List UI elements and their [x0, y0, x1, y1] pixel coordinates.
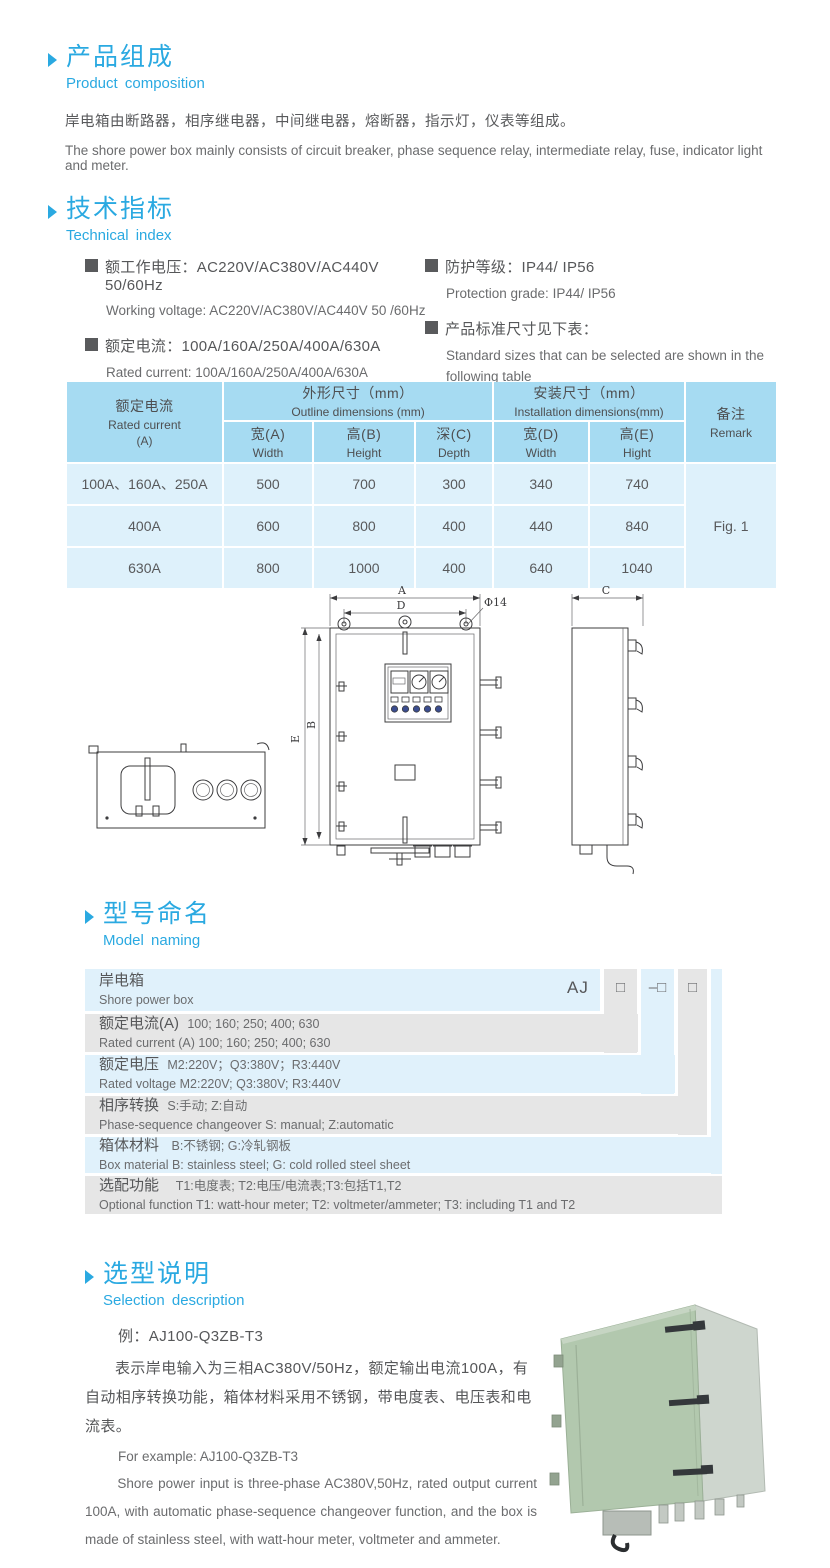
spec-protection-grade: 防护等级：IP44/ IP56 Protection grade: IP44/ … — [425, 256, 775, 305]
composition-body-zh: 岸电箱由断路器，相序继电器，中间继电器，熔断器，指示灯，仪表等组成。 — [65, 110, 788, 131]
bottom-glands-front — [337, 817, 472, 865]
naming-title-en: Model naming — [103, 932, 211, 949]
table-row-cell: 300 — [416, 464, 492, 504]
subheader-height-e: 高(E)Hight — [590, 422, 684, 462]
dim-label-d: D — [397, 599, 406, 612]
technical-title-zh: 技术指标 — [66, 196, 174, 224]
dim-label-b: B — [305, 721, 318, 729]
table-row-cell: 840 — [590, 506, 684, 546]
side-bottom-cable — [580, 845, 633, 874]
spec-zh-text: 额工作电压：AC220V/AC380V/AC440V 50/60Hz — [105, 256, 435, 294]
table-row-cell: 740 — [590, 464, 684, 504]
spec-zh-text: 防护等级：IP44/ IP56 — [445, 256, 595, 277]
table-row-cell: 100A、160A、250A — [67, 464, 222, 504]
table-row-cell: 400A — [67, 506, 222, 546]
header-rated-current: 额定电流 Rated current (A) — [67, 382, 222, 462]
naming-heading: 型号命名 Model naming — [85, 901, 765, 949]
dim-label-a: A — [397, 584, 407, 597]
technical-heading: 技术指标 Technical index — [48, 196, 788, 244]
subheader-width-a: 宽(A)Width — [224, 422, 312, 462]
technical-title-en: Technical index — [66, 227, 174, 244]
naming-row-box-material: 箱体材料 B:不锈钢; G:冷轧钢板 Box material B: stain… — [85, 1137, 722, 1173]
selection-heading: 选型说明 Selection description — [85, 1261, 537, 1309]
outline-drawing-svg: A D Φ14 — [85, 582, 765, 882]
spec-en-text: Working voltage: AC220V/AC380V/AC440V 50… — [106, 301, 435, 322]
spec-en-text: Protection grade: IP44/ IP56 — [446, 284, 775, 305]
subheader-height-b: 高(B)Height — [314, 422, 414, 462]
product-photo — [545, 1293, 810, 1558]
spec-zh-text: 额定电流：100A/160A/250A/400A/630A — [105, 335, 381, 356]
table-row-cell: 340 — [494, 464, 588, 504]
dim-label-c: C — [602, 584, 610, 597]
side-latches — [628, 640, 642, 828]
dim-label-phi14: Φ14 — [484, 596, 507, 609]
selection-title-en: Selection description — [103, 1292, 244, 1309]
spec-zh-text: 产品标准尺寸见下表： — [445, 318, 598, 339]
square-bullet-icon — [85, 338, 98, 351]
subheader-depth-c: 深(C)Depth — [416, 422, 492, 462]
naming-row-shore-power-box: 岸电箱 Shore power box AJ — [85, 969, 600, 1011]
datasheet-page: 产品组成 Product composition 岸电箱由断路器，相序继电器，中… — [0, 0, 830, 1568]
arrow-icon — [48, 205, 57, 219]
arrow-icon — [85, 1270, 94, 1284]
subheader-width-d: 宽(D)Width — [494, 422, 588, 462]
selection-body-zh: 表示岸电输入为三相AC380V/50Hz，额定输出电流100A，有自动相序转换功… — [85, 1354, 537, 1442]
composition-body-en: The shore power box mainly consists of c… — [65, 143, 788, 173]
table-row-cell: 800 — [314, 506, 414, 546]
naming-title-zh: 型号命名 — [103, 901, 211, 929]
section-product-composition: 产品组成 Product composition 岸电箱由断路器，相序继电器，中… — [48, 44, 788, 173]
green-box-illustration — [545, 1293, 810, 1553]
composition-heading: 产品组成 Product composition — [48, 44, 788, 92]
naming-row-rated-voltage: 额定电压 M2:220V；Q3:380V；R3:440V Rated volta… — [85, 1055, 675, 1093]
naming-row-optional-function: 选配功能 T1:电度表; T2:电压/电流表;T3:包括T1,T2 Option… — [85, 1176, 722, 1214]
square-bullet-icon — [425, 321, 438, 334]
control-panel — [385, 664, 451, 722]
square-bullet-icon — [425, 259, 438, 272]
arrow-icon — [48, 53, 57, 67]
section-model-naming: 型号命名 Model naming □ –□ □ 岸电箱 Shore power… — [85, 901, 765, 1215]
table-row-cell: 500 — [224, 464, 312, 504]
model-prefix: AJ — [567, 978, 589, 998]
model-naming-table: □ –□ □ 岸电箱 Shore power box AJ 额定电流(A) 10… — [85, 969, 725, 1215]
table-row-cell: 400 — [416, 506, 492, 546]
section-technical-index: 技术指标 Technical index 额工作电压：AC220V/AC380V… — [48, 196, 788, 244]
shore-power-box-image — [550, 1305, 765, 1550]
table-row-cell: 700 — [314, 464, 414, 504]
table-row-cell: 600 — [224, 506, 312, 546]
header-outline-dimensions: 外形尺寸（mm） Outline dimensions (mm) — [224, 382, 492, 420]
selection-example-en: For example: AJ100-Q3ZB-T3 — [118, 1449, 537, 1464]
side-view: C — [572, 584, 643, 874]
header-installation-dimensions: 安装尺寸（mm） Installation dimensions(mm) — [494, 382, 684, 420]
square-bullet-icon — [85, 259, 98, 272]
naming-row-phase-sequence: 相序转换 S:手动; Z:自动 Phase-sequence changeove… — [85, 1096, 707, 1134]
door-screws — [336, 682, 347, 831]
selection-example-zh: 例：AJ100-Q3ZB-T3 — [118, 1325, 537, 1346]
selection-body-en: Shore power input is three-phase AC380V,… — [85, 1470, 537, 1553]
spec-column-right: 防护等级：IP44/ IP56 Protection grade: IP44/ … — [425, 256, 775, 401]
section-selection-description: 选型说明 Selection description 例：AJ100-Q3ZB-… — [85, 1261, 537, 1553]
dimensions-table: 额定电流 Rated current (A) 外形尺寸（mm） Outline … — [67, 382, 776, 588]
naming-row-rated-current: 额定电流(A) 100; 160; 250; 400; 630 Rated cu… — [85, 1014, 638, 1052]
spec-working-voltage: 额工作电压：AC220V/AC380V/AC440V 50/60Hz Worki… — [85, 256, 435, 322]
spec-column-left: 额工作电压：AC220V/AC380V/AC440V 50/60Hz Worki… — [85, 256, 435, 397]
spec-rated-current: 额定电流：100A/160A/250A/400A/630A Rated curr… — [85, 335, 435, 384]
bottom-view — [89, 743, 269, 828]
table-row-cell: 440 — [494, 506, 588, 546]
composition-title-en: Product composition — [66, 75, 205, 92]
selection-title-zh: 选型说明 — [103, 1261, 244, 1289]
spec-standard-sizes: 产品标准尺寸见下表： Standard sizes that can be se… — [425, 318, 775, 388]
spec-en-text: Rated current: 100A/160A/250A/400A/630A — [106, 363, 435, 384]
dim-label-e: E — [289, 735, 302, 743]
technical-drawing: A D Φ14 — [85, 582, 765, 882]
header-remark: 备注 Remark — [686, 382, 776, 462]
remark-fig-cell: Fig. 1 — [686, 464, 776, 588]
front-view: A D Φ14 — [289, 584, 507, 865]
door-latches — [480, 677, 501, 833]
arrow-icon — [85, 910, 94, 924]
composition-title-zh: 产品组成 — [66, 44, 205, 72]
